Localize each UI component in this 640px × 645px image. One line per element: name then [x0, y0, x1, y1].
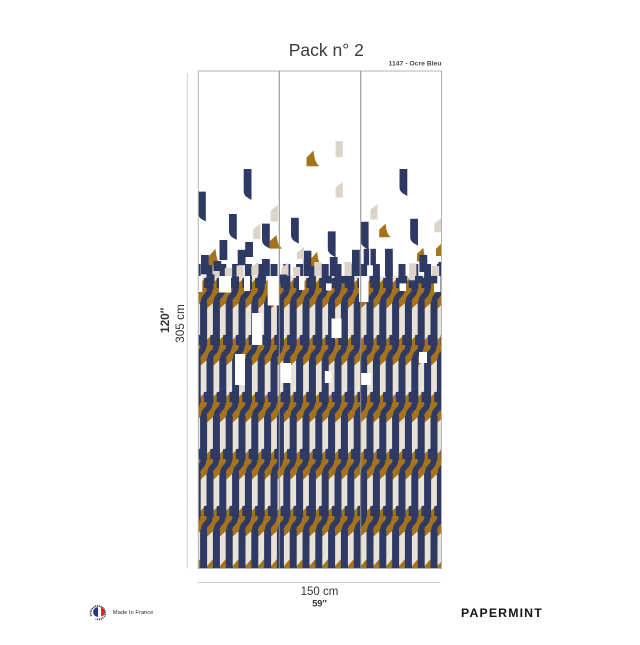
- svg-text:150 cm: 150 cm: [301, 586, 339, 598]
- svg-text:120″: 120″: [158, 307, 172, 333]
- svg-text:1147 - Ocre Bleu: 1147 - Ocre Bleu: [389, 60, 442, 67]
- svg-text:PAPERMINT: PAPERMINT: [461, 606, 543, 620]
- svg-text:305 cm: 305 cm: [173, 304, 187, 343]
- svg-text:59″: 59″: [312, 599, 327, 609]
- svg-text:Pack n° 2: Pack n° 2: [289, 40, 364, 60]
- svg-text:Made In France: Made In France: [113, 610, 154, 616]
